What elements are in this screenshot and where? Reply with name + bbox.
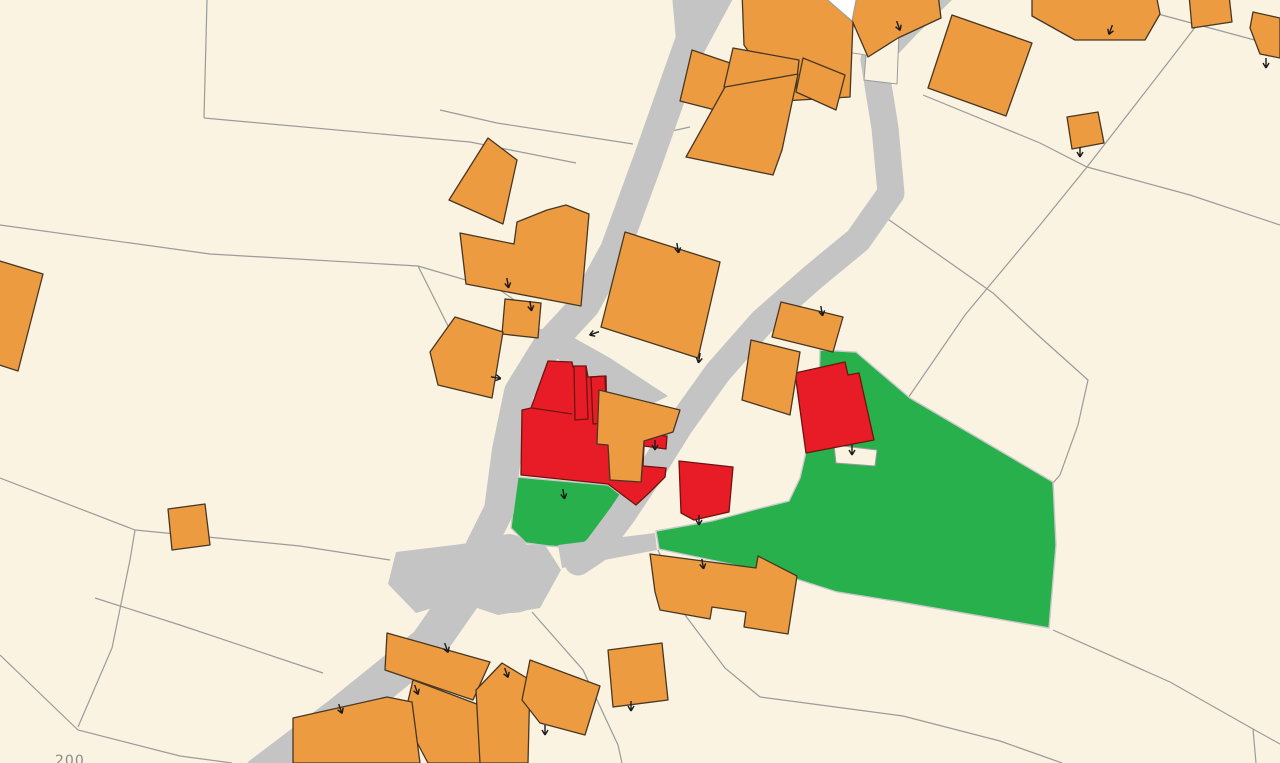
building[interactable] — [608, 643, 668, 707]
parcel-boundary-line — [204, 118, 576, 163]
selected-building[interactable] — [574, 366, 588, 420]
building[interactable] — [460, 205, 589, 306]
building[interactable] — [449, 138, 517, 224]
building[interactable] — [742, 340, 800, 415]
parcel-boundary-line — [0, 655, 232, 763]
building-tick-icon — [589, 329, 600, 338]
building[interactable] — [522, 660, 600, 735]
parcel-number-label: 200 — [55, 753, 85, 763]
building[interactable] — [650, 554, 797, 634]
parcel-boundary-line — [440, 110, 633, 144]
parcel-boundary-line — [78, 530, 135, 727]
building-tick-icon — [542, 725, 548, 735]
parcel-boundary-line — [923, 95, 1280, 225]
cadastral-map[interactable]: 200 — [0, 0, 1280, 763]
building-tick-icon — [1263, 58, 1269, 68]
building[interactable] — [1250, 12, 1280, 58]
building[interactable] — [502, 299, 541, 338]
building[interactable] — [772, 302, 843, 352]
road-turnaround[interactable] — [486, 571, 540, 613]
building[interactable] — [1189, 0, 1232, 28]
parcel-boundary-line — [0, 225, 450, 330]
parcel-boundary-line — [204, 0, 207, 118]
building[interactable] — [928, 15, 1032, 116]
parcel-boundary-line — [760, 697, 1062, 763]
building[interactable] — [0, 258, 43, 371]
building[interactable] — [1067, 112, 1104, 149]
building[interactable] — [430, 317, 503, 398]
building[interactable] — [1032, 0, 1160, 40]
map-viewport[interactable]: 200 — [0, 0, 1280, 763]
building[interactable] — [476, 663, 530, 763]
parcel-boundary-line — [1253, 729, 1256, 763]
building[interactable] — [293, 697, 420, 763]
parcel-boundary-line — [1053, 630, 1280, 744]
building[interactable] — [168, 504, 210, 550]
selected-building[interactable] — [679, 461, 733, 520]
parcel-boundary-line — [95, 598, 323, 673]
